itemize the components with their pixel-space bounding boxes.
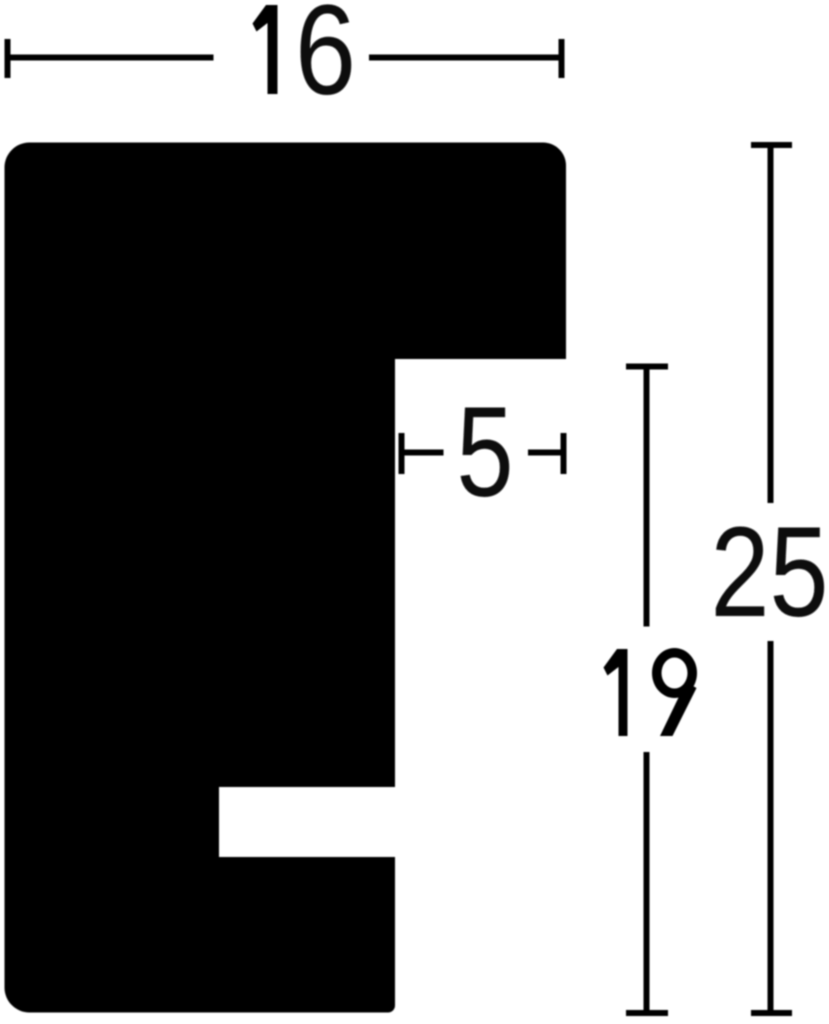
svg-text:25: 25 xyxy=(711,501,829,644)
svg-text:5: 5 xyxy=(457,381,514,524)
svg-text:6: 6 xyxy=(295,0,356,122)
